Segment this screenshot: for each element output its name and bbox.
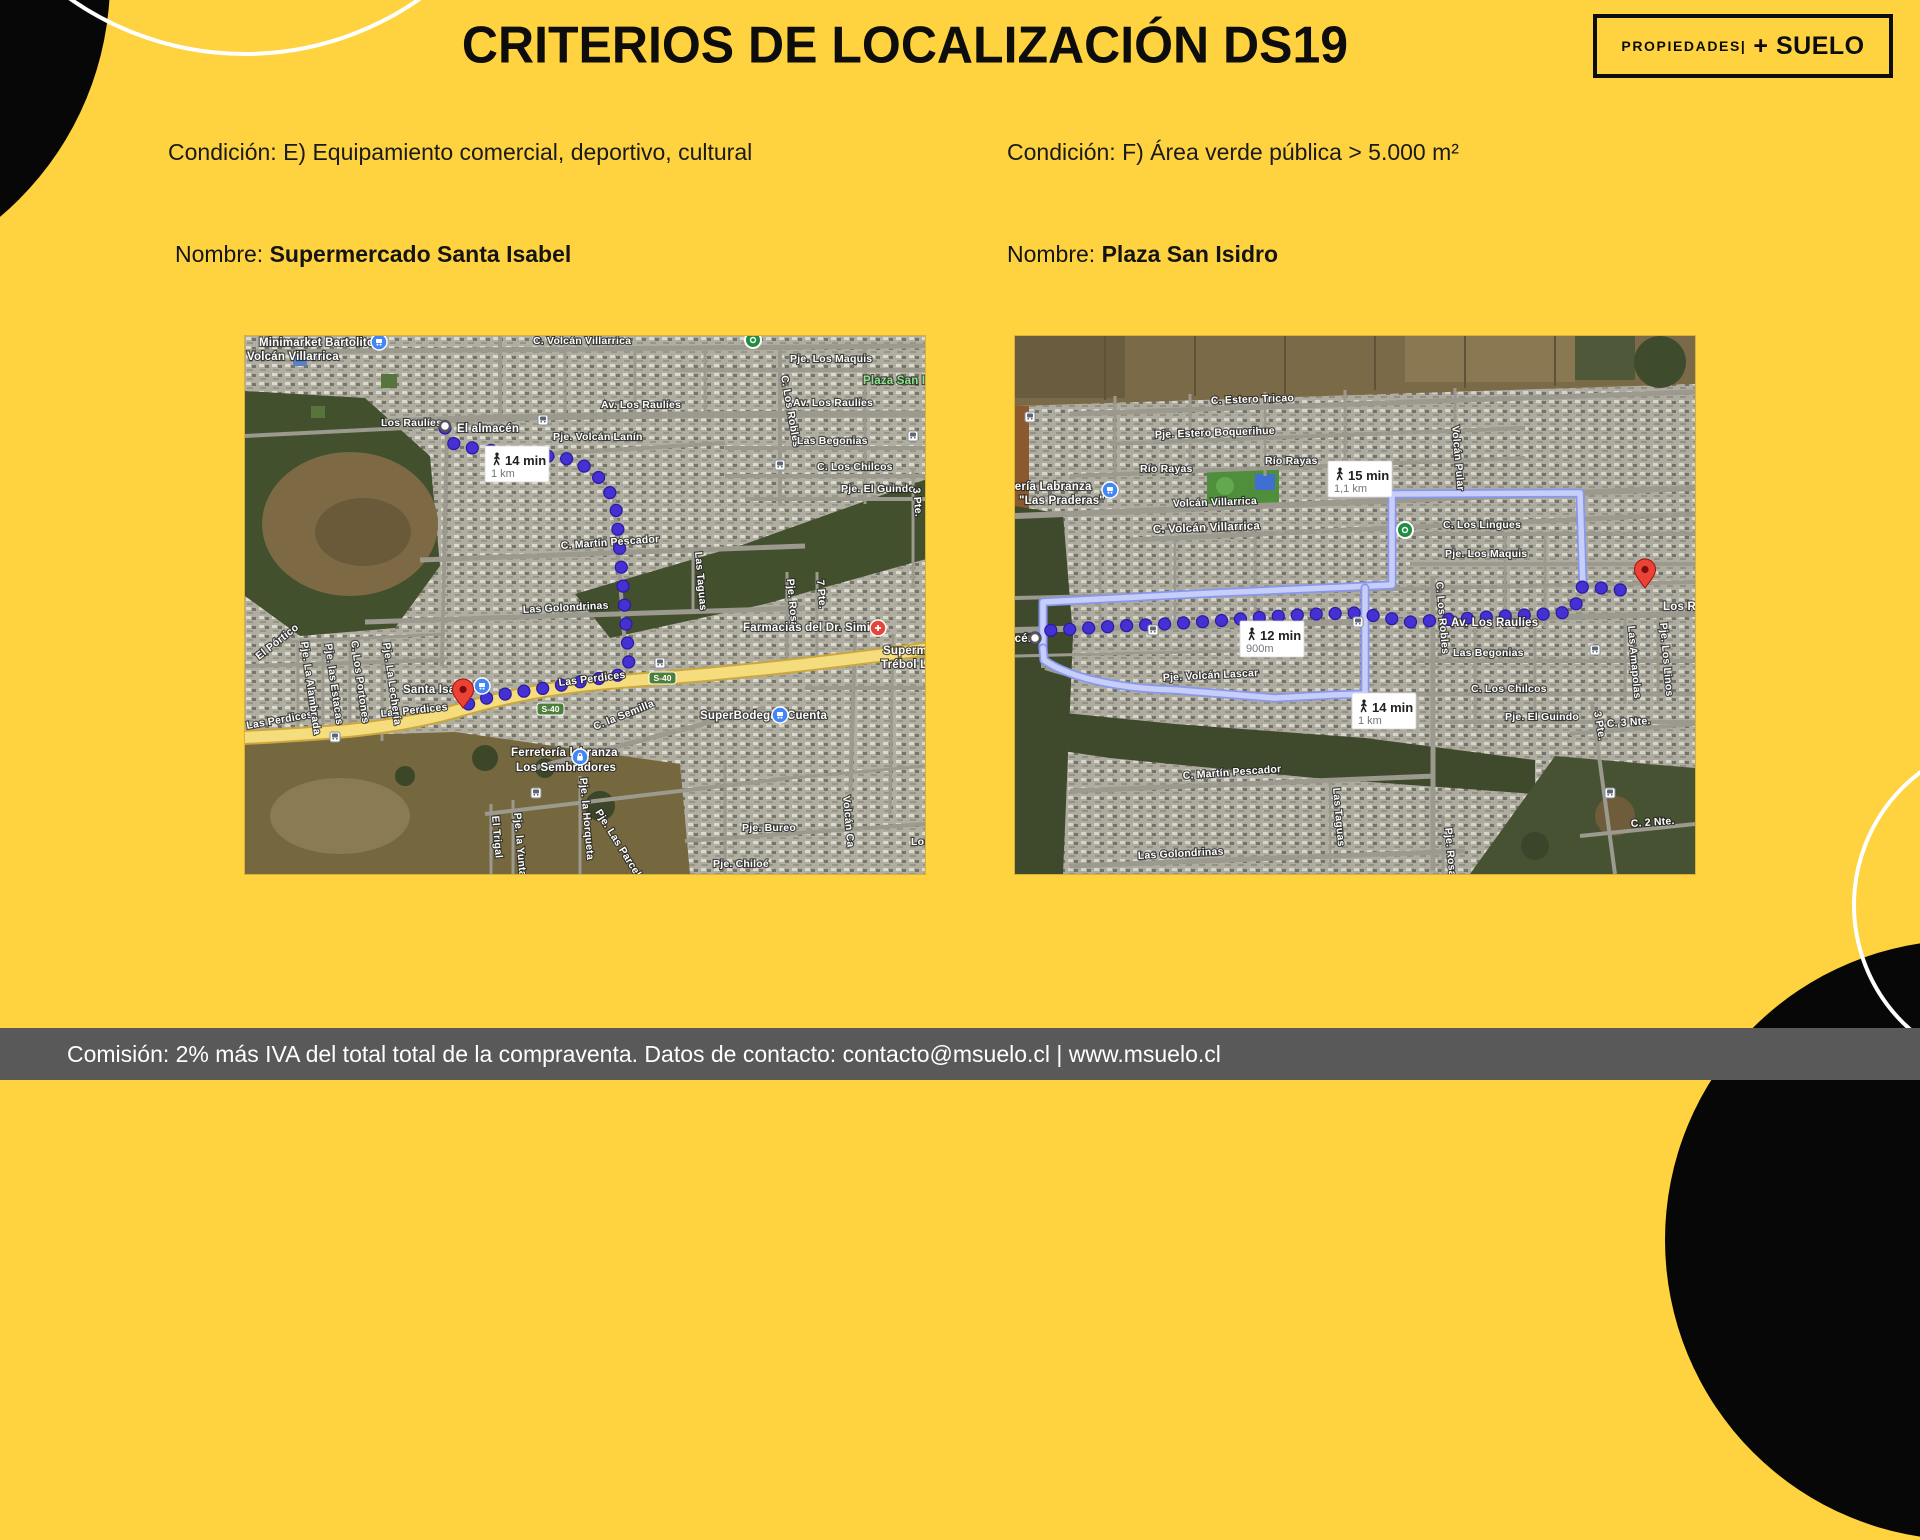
route-dot (612, 523, 624, 535)
route-dot (1159, 618, 1171, 630)
map-label: Volcán Villarrica (247, 351, 339, 363)
route-dot (1178, 617, 1190, 629)
map-label: Av. Los Raulíes (601, 399, 681, 411)
map-label: Los (911, 836, 925, 848)
page-title: CRITERIOS DE LOCALIZACIÓN DS19 (340, 15, 1470, 75)
map-label: C. Los Chilcos (1471, 683, 1547, 695)
site-name-left-value: Supermercado Santa Isabel (270, 241, 572, 267)
route-dot (1045, 624, 1057, 636)
map-label: Los Raulíes (1663, 601, 1695, 613)
route-dot (610, 504, 622, 516)
route-dot (1291, 609, 1303, 621)
map-left-svg: S-40S-40Minimarket BartolitoVolcán Villa… (245, 336, 925, 874)
route-dot (622, 637, 634, 649)
transit-marker (531, 788, 541, 798)
map-screenshot-plaza: C. Estero TricaoPje. Estero BoquerihueRí… (1015, 336, 1695, 874)
route-shield: S-40 (649, 672, 676, 684)
route-dot (1614, 584, 1626, 596)
map-label: 3 Pte. (910, 487, 925, 517)
route-dot (1310, 608, 1322, 620)
map-label: Las Begonias (797, 435, 868, 447)
route-dot (1216, 615, 1228, 627)
route-dot (1423, 615, 1435, 627)
map-label: Minimarket Bartolito (259, 337, 374, 349)
map-label: Pje. Volcán Lanín (553, 431, 643, 443)
map-label: 7 Pte. (814, 579, 829, 609)
route-dot (1064, 623, 1076, 635)
map-label: SuperBodega aCuenta (700, 710, 828, 722)
blue-marker (474, 678, 490, 694)
route-dot (499, 688, 511, 700)
route-dot (623, 656, 635, 668)
blue-marker (1102, 482, 1118, 498)
route-dot (1102, 621, 1114, 633)
origin-marker (1030, 633, 1040, 643)
route-dot (1386, 613, 1398, 625)
transit-marker (1605, 788, 1615, 798)
map-label: Supermercado (883, 645, 925, 657)
site-name-left-label: Nombre: (175, 241, 270, 267)
walking-time-badge: 14 min1 km (485, 446, 549, 482)
route-dot (1329, 608, 1341, 620)
map-label: Pje. Chiloé (713, 858, 769, 870)
transit-marker (775, 460, 785, 470)
map-label: Plaza San Isidro (863, 375, 925, 387)
redshop-marker (870, 620, 886, 636)
brand-logo: PROPIEDADES| + SUELO (1593, 14, 1893, 78)
walking-time-badge: 12 min900m (1240, 621, 1304, 657)
transit-marker (655, 658, 665, 668)
route-dot (578, 460, 590, 472)
transit-marker (1148, 625, 1158, 635)
route-dot (1272, 610, 1284, 622)
footer-bar: Comisión: 2% más IVA del total total de … (0, 1028, 1920, 1080)
map-label: Las Begonias (1453, 647, 1524, 659)
map-label: Los Raulíes (381, 417, 442, 429)
map-label: Pje. Los Maquis (1445, 548, 1527, 560)
map-label: Pje. Los Maquis (790, 353, 872, 365)
route-dot (537, 682, 549, 694)
site-name-right: Nombre: Plaza San Isidro (1007, 241, 1278, 268)
brand-logo-text-big: + SUELO (1753, 32, 1864, 61)
site-name-right-value: Plaza San Isidro (1102, 241, 1278, 267)
condition-text-left: Condición: E) Equipamiento comercial, de… (168, 139, 752, 166)
map-label: Pje. Bureo (742, 822, 796, 834)
route-dot (1405, 616, 1417, 628)
route-dot (593, 472, 605, 484)
map-label: C. Los Lingues (1443, 519, 1521, 531)
badge-time-text: 12 min (1260, 628, 1301, 643)
badge-distance-text: 900m (1246, 643, 1274, 655)
map-label: Pje. El Guindo (1505, 711, 1579, 723)
brand-logo-text-small: PROPIEDADES| (1621, 38, 1746, 54)
walking-time-badge: 14 min1 km (1352, 693, 1416, 729)
route-dot (615, 561, 627, 573)
route-dot (1595, 582, 1607, 594)
route-dot (1576, 581, 1588, 593)
green-marker (745, 336, 761, 348)
route-dot (619, 599, 631, 611)
badge-time-text: 14 min (505, 453, 546, 468)
badge-distance-text: 1,1 km (1334, 483, 1367, 495)
route-dot (1570, 598, 1582, 610)
footer-text: Comisión: 2% más IVA del total total de … (67, 1041, 1221, 1068)
map-label: Av. Los Raulíes (793, 397, 873, 409)
route-dot (604, 487, 616, 499)
origin-marker (440, 421, 450, 431)
badge-time-text: 15 min (1348, 468, 1389, 483)
site-name-left: Nombre: Supermercado Santa Isabel (175, 241, 571, 268)
walking-time-badge: 15 min1,1 km (1328, 461, 1392, 497)
badge-distance-text: 1 km (1358, 715, 1382, 727)
route-dot (466, 442, 478, 454)
transit-marker (330, 732, 340, 742)
route-shield-text: S-40 (542, 704, 560, 714)
map-label: El almacén (457, 423, 519, 435)
map-label: "Las Praderas" (1019, 495, 1105, 507)
transit-marker (1025, 412, 1035, 422)
route-dot (1556, 607, 1568, 619)
corner-circle-black-top-left (0, 0, 110, 290)
transit-marker (538, 415, 548, 425)
transit-marker (1590, 645, 1600, 655)
route-dot (448, 438, 460, 450)
transit-marker (1353, 617, 1363, 627)
route-shield-text: S-40 (654, 673, 672, 683)
blue-marker (371, 336, 387, 350)
route-shield: S-40 (537, 703, 564, 715)
map-label: Farmacias del Dr. Simi (743, 622, 870, 634)
route-dot (518, 685, 530, 697)
route-dot (1367, 610, 1379, 622)
map-right-svg: C. Estero TricaoPje. Estero BoquerihueRí… (1015, 336, 1695, 874)
badge-time-text: 14 min (1372, 700, 1413, 715)
route-dot (620, 618, 632, 630)
map-label: Trébol Labranza (881, 659, 925, 671)
route-dot (617, 580, 629, 592)
route-origin-icon (440, 421, 450, 431)
site-name-right-label: Nombre: (1007, 241, 1102, 267)
map-label: Av. Los Raulíes (1451, 617, 1538, 629)
route-origin-icon (1030, 633, 1040, 643)
map-label: C. Los Chilcos (817, 461, 893, 473)
route-dot (1197, 616, 1209, 628)
route-dot (1083, 622, 1095, 634)
map-screenshot-supermercado: S-40S-40Minimarket BartolitoVolcán Villa… (245, 336, 925, 874)
map-label: Los Sembradores (516, 762, 616, 774)
map-label: Pje. El Guindo (841, 483, 915, 495)
map-label: Río Rayas (1265, 455, 1318, 467)
map-label: Ferretería labranza (511, 747, 618, 759)
route-dot (1121, 620, 1133, 632)
route-dot (561, 453, 573, 465)
map-label: Río Rayas (1140, 463, 1193, 475)
transit-marker (908, 431, 918, 441)
map-label: Ferretería Labranza (1015, 481, 1092, 493)
lock-marker (572, 749, 588, 765)
blue-marker (772, 707, 788, 723)
route-dot (1537, 608, 1549, 620)
map-label: C. Volcán Villarrica (533, 336, 631, 347)
condition-text-right: Condición: F) Área verde pública > 5.000… (1007, 139, 1459, 166)
green-marker (1397, 522, 1413, 538)
badge-distance-text: 1 km (491, 468, 515, 480)
